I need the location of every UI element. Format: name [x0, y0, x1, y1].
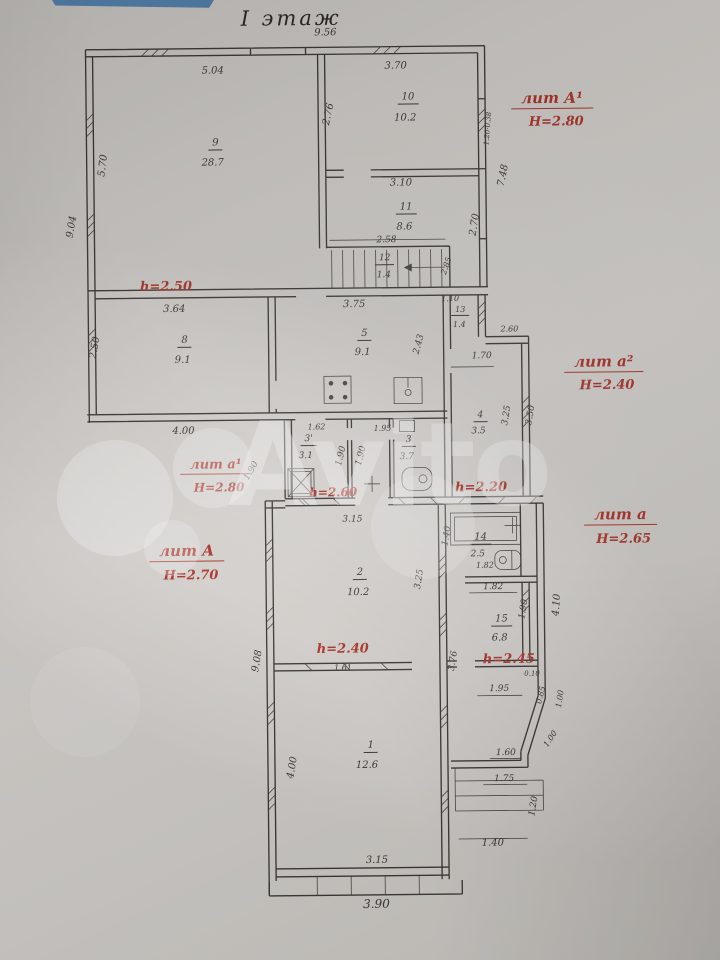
dimension-label: 1.82 — [476, 562, 494, 570]
height-annotation: h=2.45 — [483, 653, 535, 667]
room-number: 9 — [208, 138, 222, 150]
room-number: 10 — [398, 92, 419, 104]
liter-annotation: лит а — [584, 507, 657, 526]
dimension-label: 1.62 — [307, 423, 325, 431]
dimension-label: 3.15 — [366, 856, 388, 866]
dimension-label: 1.95 — [374, 425, 392, 433]
room-area: 9.1 — [355, 348, 371, 358]
room-number: 1 — [364, 741, 378, 753]
dimension-label: 0.10 — [524, 671, 540, 678]
room-number: 3 — [402, 436, 416, 447]
room-area: 3.1 — [299, 452, 313, 461]
room-area: 12.6 — [356, 761, 378, 771]
dimension-label: 2.70 — [469, 213, 483, 237]
liter-height-annotation: Н=2.80 — [194, 481, 245, 494]
liter-annotation: лит А — [149, 543, 224, 562]
dimension-label: 3.50 — [525, 405, 537, 426]
dimension-label: 9.04 — [66, 215, 80, 239]
liter-annotation: лит а² — [564, 354, 643, 373]
dimension-label: 7.48 — [497, 164, 511, 188]
dimension-label: 2.60 — [500, 325, 518, 333]
dimension-label: 3.90 — [363, 898, 390, 910]
room-area: 28.7 — [201, 158, 223, 168]
dimension-label: 3.10 — [390, 178, 412, 188]
liter-annotation: лит а¹ — [180, 458, 252, 475]
room-area: 9.1 — [175, 356, 191, 366]
height-annotation: h=2.60 — [309, 486, 357, 499]
dimension-label: 1.82 — [483, 583, 503, 592]
liter-height-annotation: Н=2.80 — [529, 115, 584, 129]
dimension-label: 3.76 — [448, 650, 460, 671]
floorplan: I этаж9.565.043.705.709.042.76928.71010.… — [0, 0, 720, 964]
room-area: 1.4 — [377, 271, 391, 280]
dimension-label: 1.00 — [542, 729, 559, 748]
room-area: 8.6 — [396, 222, 412, 232]
dimension-label: 1.70 — [472, 352, 492, 361]
dimension-label: 2.85 — [440, 256, 453, 275]
room-number: 3' — [300, 435, 316, 446]
dimension-label: 0.85 — [535, 685, 547, 704]
room-number: 5 — [357, 329, 371, 341]
dimension-label: 3.64 — [163, 305, 185, 315]
liter-annotation: лит А¹ — [511, 91, 593, 110]
dimension-label: 2.50 — [89, 336, 103, 360]
dimension-label: 1.90 — [355, 445, 369, 467]
room-number: 2 — [353, 568, 367, 580]
room-area: 3.7 — [400, 453, 414, 462]
dimension-label: 1.61 — [334, 664, 352, 672]
room-number: 12 — [375, 254, 395, 265]
room-area: 10.2 — [347, 588, 369, 598]
dimension-label: 4.10 — [551, 593, 563, 616]
room-area: 3.5 — [471, 427, 485, 436]
room-number: 4 — [473, 411, 487, 422]
dimension-label: 1.40 — [482, 839, 504, 849]
dimension-label: 9.08 — [251, 649, 265, 673]
labels-layer: I этаж9.565.043.705.709.042.76928.71010.… — [0, 0, 720, 964]
dimension-label: 9.56 — [314, 28, 336, 38]
room-number: 11 — [396, 202, 417, 214]
dimension-label: 1.95 — [489, 685, 509, 694]
liter-height-annotation: Н=2.65 — [596, 532, 651, 546]
dimension-label: 2.43 — [413, 334, 427, 356]
dimension-label: 3.15 — [342, 515, 362, 524]
room-area: 6.8 — [492, 633, 508, 643]
dimension-label: 1.90 — [335, 445, 349, 467]
room-number: 13 — [451, 306, 469, 316]
room-area: 2.5 — [471, 550, 485, 559]
room-area: 1.4 — [453, 321, 466, 329]
dimension-label: 3.70 — [384, 61, 406, 71]
room-area: 10.2 — [394, 113, 416, 123]
dimension-label: 1.20 — [528, 796, 540, 817]
height-annotation: h=2.20 — [455, 481, 507, 495]
dimension-label: 5.04 — [202, 66, 224, 76]
dimension-label: 1.40 — [442, 525, 454, 546]
dimension-label: 1.00 — [555, 689, 566, 708]
dimension-label: 1.20·0.38 — [484, 112, 494, 146]
room-number: 8 — [177, 336, 191, 348]
room-number: 15 — [491, 614, 512, 626]
dimension-label: 1.10 — [441, 295, 459, 303]
dimension-label: 3.25 — [501, 405, 513, 426]
dimension-label: 2.58 — [376, 236, 396, 245]
liter-height-annotation: Н=2.40 — [580, 379, 635, 393]
dimension-label: 3.25 — [414, 569, 426, 590]
dimension-label: 1.75 — [494, 775, 514, 784]
dimension-label: 2.76 — [322, 102, 336, 126]
dimension-label: 1.60 — [496, 749, 516, 758]
liter-height-annotation: Н=2.70 — [164, 569, 219, 583]
dimension-label: 1.90 — [518, 599, 530, 620]
dimension-label: 5.70 — [97, 154, 110, 177]
dimension-label: 3.75 — [343, 300, 365, 310]
height-annotation: h=2.50 — [140, 280, 192, 294]
dimension-label: 4.00 — [172, 427, 194, 437]
dimension-label: 4.00 — [286, 756, 300, 780]
floorplan-photo: I этаж9.565.043.705.709.042.76928.71010.… — [0, 0, 720, 960]
room-number: 14 — [470, 533, 491, 545]
height-annotation: h=2.40 — [317, 642, 369, 656]
